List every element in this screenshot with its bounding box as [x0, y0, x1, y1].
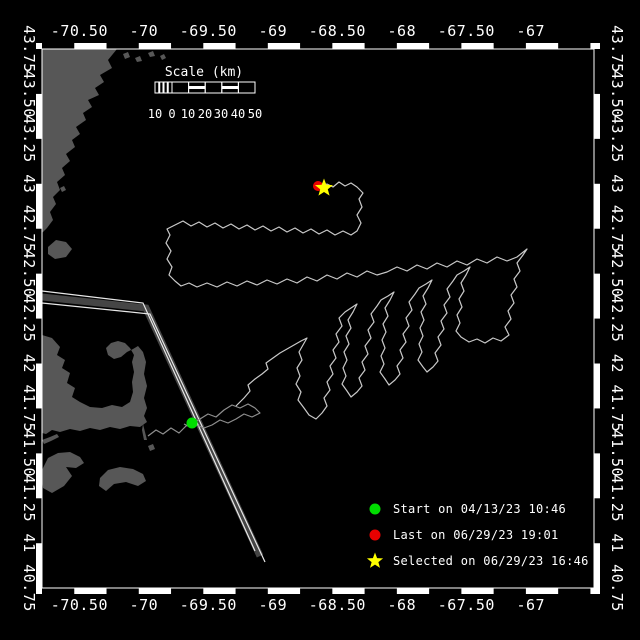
lat-tick-label-right: 41.25 [608, 474, 626, 522]
band-segment [429, 43, 461, 49]
map-canvas: -70.50-70.50-70-70-69.50-69.50-69-69-68.… [0, 0, 640, 640]
legend-last-marker [370, 530, 381, 541]
lon-tick-label-top: -69 [259, 22, 288, 40]
legend-start-label: Start on 04/13/23 10:46 [393, 502, 566, 516]
lat-tick-label-left: 42.50 [20, 250, 38, 298]
lat-tick-label-right: 40.75 [608, 564, 626, 612]
lon-tick-label-top: -67 [517, 22, 546, 40]
lat-tick-label-left: 43.25 [20, 115, 38, 163]
lat-tick-label-left: 41.25 [20, 474, 38, 522]
legend-last-label: Last on 06/29/23 19:01 [393, 528, 559, 542]
lat-tick-label-right: 41 [608, 534, 626, 553]
lat-tick-label-left: 42.25 [20, 295, 38, 343]
lat-tick-label-right: 43.75 [608, 25, 626, 73]
band-segment [594, 319, 600, 364]
lat-tick-label-right: 42.75 [608, 205, 626, 253]
lat-tick-label-left: 42 [20, 354, 38, 373]
scale-bar-label: 20 [198, 107, 212, 121]
lat-tick-label-right: 43.25 [608, 115, 626, 163]
lat-tick-label-left: 43 [20, 174, 38, 193]
band-segment [494, 588, 526, 594]
start-marker [187, 418, 198, 429]
band-segment [42, 43, 74, 49]
lat-tick-label-right: 42 [608, 354, 626, 373]
lon-tick-label-top: -70.50 [51, 22, 108, 40]
lon-tick-label-bottom: -67.50 [438, 596, 495, 614]
band-segment [171, 588, 203, 594]
scale-bar-label: 10 [148, 107, 162, 121]
lat-tick-label-left: 43.75 [20, 25, 38, 73]
lon-tick-label-bottom: -68.50 [309, 596, 366, 614]
lon-tick-label-top: -69.50 [180, 22, 237, 40]
scale-bar-label: 40 [231, 107, 245, 121]
band-segment [594, 408, 600, 453]
band-segment [300, 588, 332, 594]
band-segment [236, 588, 268, 594]
lon-tick-label-top: -68.50 [309, 22, 366, 40]
band-segment [429, 588, 461, 594]
lon-tick-label-bottom: -70 [130, 596, 159, 614]
lon-tick-label-bottom: -68 [388, 596, 417, 614]
band-segment [107, 588, 139, 594]
band-segment [42, 588, 74, 594]
scale-bar-cell-stripe [222, 86, 239, 89]
lat-tick-label-left: 41.50 [20, 429, 38, 477]
scale-bar-label: 50 [248, 107, 262, 121]
scale-bar-label: 0 [168, 107, 175, 121]
lat-tick-label-right: 41.50 [608, 429, 626, 477]
band-segment [236, 43, 268, 49]
lat-tick-label-right: 41.75 [608, 385, 626, 433]
scale-bar-label: 10 [181, 107, 195, 121]
lat-tick-label-left: 43.50 [20, 70, 38, 118]
lat-tick-label-left: 42.75 [20, 205, 38, 253]
legend-start-marker [370, 504, 381, 515]
band-segment [171, 43, 203, 49]
lat-tick-label-right: 42.50 [608, 250, 626, 298]
scale-bar-cell-stripe [189, 86, 206, 89]
scale-bar-title: Scale (km) [165, 65, 243, 80]
lon-tick-label-bottom: -67 [517, 596, 546, 614]
band-segment [558, 588, 590, 594]
lat-tick-label-right: 42.25 [608, 295, 626, 343]
lat-tick-label-right: 43.50 [608, 70, 626, 118]
band-segment [594, 49, 600, 94]
legend: Start on 04/13/23 10:46Last on 06/29/23 … [367, 502, 589, 568]
legend-selected-label: Selected on 06/29/23 16:46 [393, 554, 589, 568]
scale-bar-label: 30 [214, 107, 228, 121]
band-segment [300, 43, 332, 49]
band-segment [365, 588, 397, 594]
band-segment [594, 229, 600, 274]
band-segment [365, 43, 397, 49]
lat-tick-label-left: 40.75 [20, 564, 38, 612]
map-figure: -70.50-70.50-70-70-69.50-69.50-69-69-68.… [0, 0, 640, 640]
band-segment [594, 139, 600, 184]
band-segment [594, 498, 600, 543]
lon-tick-label-bottom: -70.50 [51, 596, 108, 614]
band-segment [107, 43, 139, 49]
lat-tick-label-left: 41 [20, 534, 38, 553]
lon-tick-label-top: -67.50 [438, 22, 495, 40]
lat-tick-label-right: 43 [608, 174, 626, 193]
lon-tick-label-top: -70 [130, 22, 159, 40]
lon-tick-label-bottom: -69.50 [180, 596, 237, 614]
lon-tick-label-bottom: -69 [259, 596, 288, 614]
band-segment [494, 43, 526, 49]
lat-tick-label-left: 41.75 [20, 385, 38, 433]
lon-tick-label-top: -68 [388, 22, 417, 40]
band-segment [558, 43, 590, 49]
